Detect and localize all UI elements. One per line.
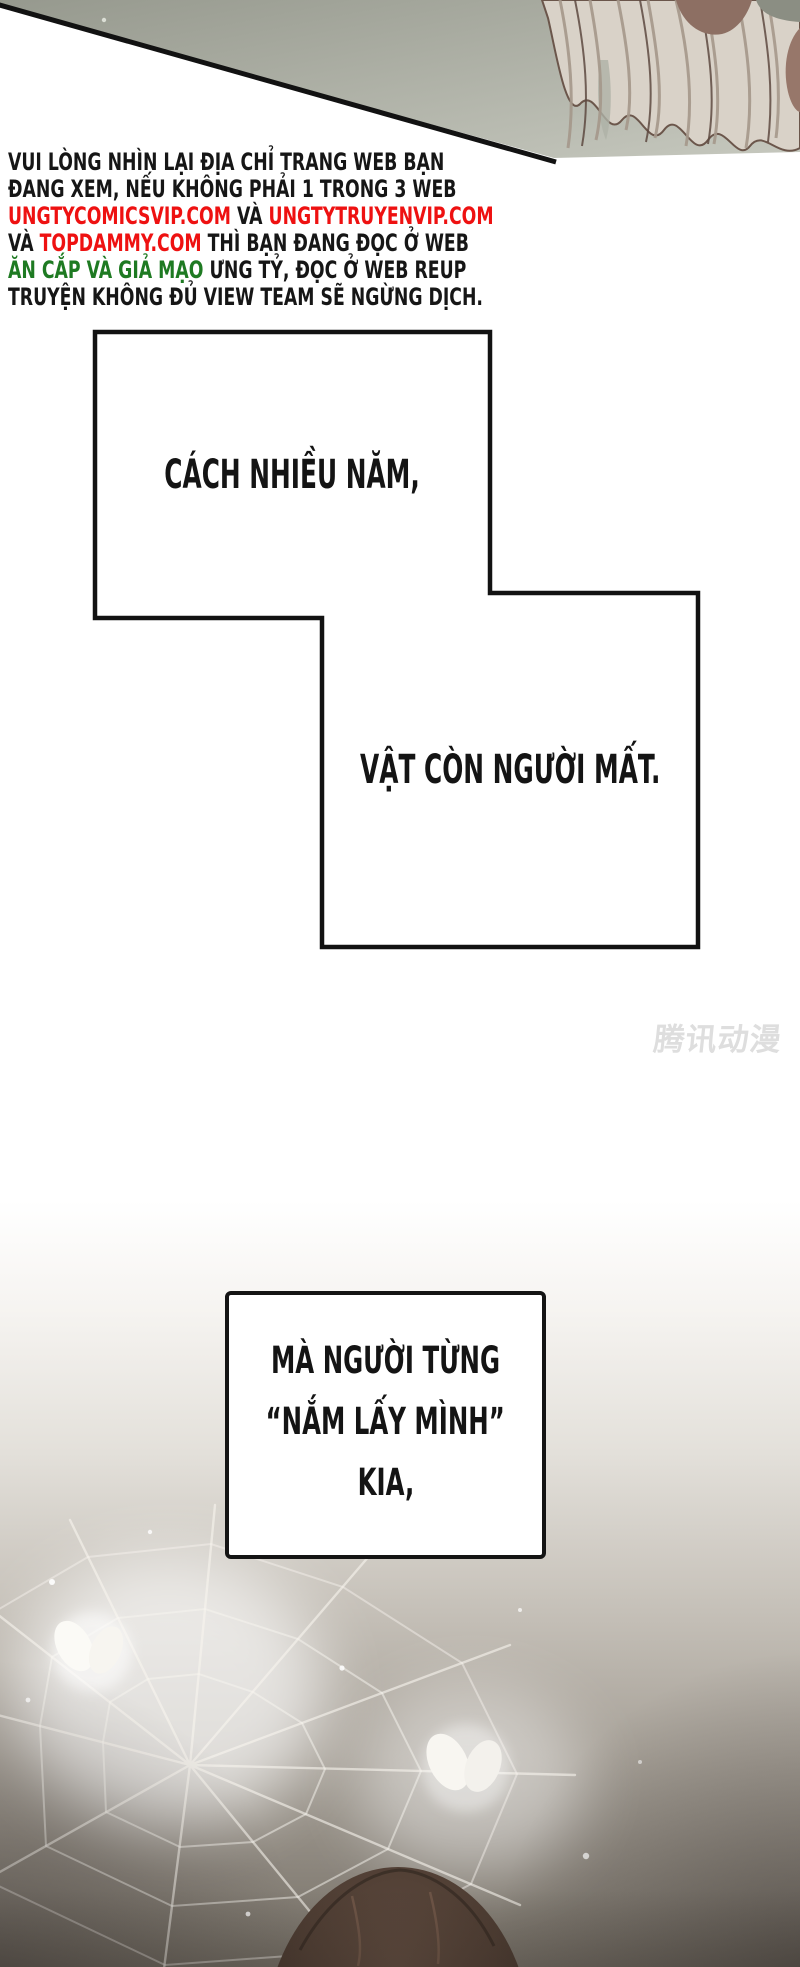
caption-text: CÁCH NHIỀU NĂM, — [165, 452, 420, 498]
website-url: UNGTYCOMICSVIP.COM — [8, 202, 231, 230]
caption-box-3: MÀ NGƯỜI TỪNG “NẮM LẤY MÌNH” KIA, — [225, 1291, 546, 1559]
warning-text-segment: VUI LÒNG NHÌN LẠI ĐỊA CHỈ TRANG WEB BẠN — [8, 148, 444, 176]
bottom-shade — [0, 1890, 800, 1967]
warning-text-segment: TRUYỆN KHÔNG ĐỦ VIEW TEAM SẼ NGỪNG DỊCH. — [8, 283, 483, 311]
site-warning-text: VUI LÒNG NHÌN LẠI ĐỊA CHỈ TRANG WEB BẠN … — [8, 149, 682, 311]
dust-speck — [102, 18, 106, 22]
warning-text-segment: VÀ — [231, 202, 269, 230]
warning-line: VUI LÒNG NHÌN LẠI ĐỊA CHỈ TRANG WEB BẠN — [8, 149, 494, 176]
warning-line: ĂN CẮP VÀ GIẢ MẠO ƯNG TỶ, ĐỌC Ở WEB REUP — [8, 257, 494, 284]
warning-line: TRUYỆN KHÔNG ĐỦ VIEW TEAM SẼ NGỪNG DỊCH. — [8, 284, 494, 311]
butterfly-icon-right — [418, 1724, 510, 1812]
warning-line: ĐANG XEM, NẾU KHÔNG PHẢI 1 TRONG 3 WEB — [8, 176, 494, 203]
warning-line: UNGTYCOMICSVIP.COM VÀ UNGTYTRUYENVIP.COM — [8, 203, 494, 230]
website-url: UNGTYTRUYENVIP.COM — [269, 202, 494, 230]
caption-text: VẬT CÒN NGƯỜI MẤT. — [360, 747, 660, 793]
warning-text-segment: ĂN CẮP VÀ GIẢ MẠO — [8, 256, 203, 284]
comic-page: VUI LÒNG NHÌN LẠI ĐỊA CHỈ TRANG WEB BẠN … — [0, 0, 800, 1967]
caption-text: KIA, — [357, 1456, 414, 1510]
warning-text-segment: ƯNG TỶ, ĐỌC Ở WEB REUP — [203, 256, 466, 284]
caption-line: MÀ NGƯỜI TỪNG — [212, 1334, 559, 1395]
caption-box-2: VẬT CÒN NGƯỜI MẤT. — [322, 593, 698, 947]
website-url: TOPDAMMY.COM — [40, 229, 202, 257]
caption-text: MÀ NGƯỜI TỪNG — [271, 1334, 500, 1388]
warning-text-segment: THÌ BẠN ĐANG ĐỌC Ở WEB — [202, 229, 469, 257]
caption-box-1: CÁCH NHIỀU NĂM, — [95, 332, 490, 618]
caption-line: KIA, — [343, 1456, 429, 1517]
warning-line: VÀ TOPDAMMY.COM THÌ BẠN ĐANG ĐỌC Ở WEB — [8, 230, 494, 257]
warning-text-segment: ĐANG XEM, NẾU KHÔNG PHẢI 1 TRONG 3 WEB — [8, 175, 456, 203]
tencent-watermark: 腾讯动漫 — [652, 1014, 785, 1059]
caption-line: “NẮM LẤY MÌNH” — [204, 1395, 566, 1456]
caption-text: “NẮM LẤY MÌNH” — [266, 1395, 505, 1449]
warning-text-segment: VÀ — [8, 229, 40, 257]
